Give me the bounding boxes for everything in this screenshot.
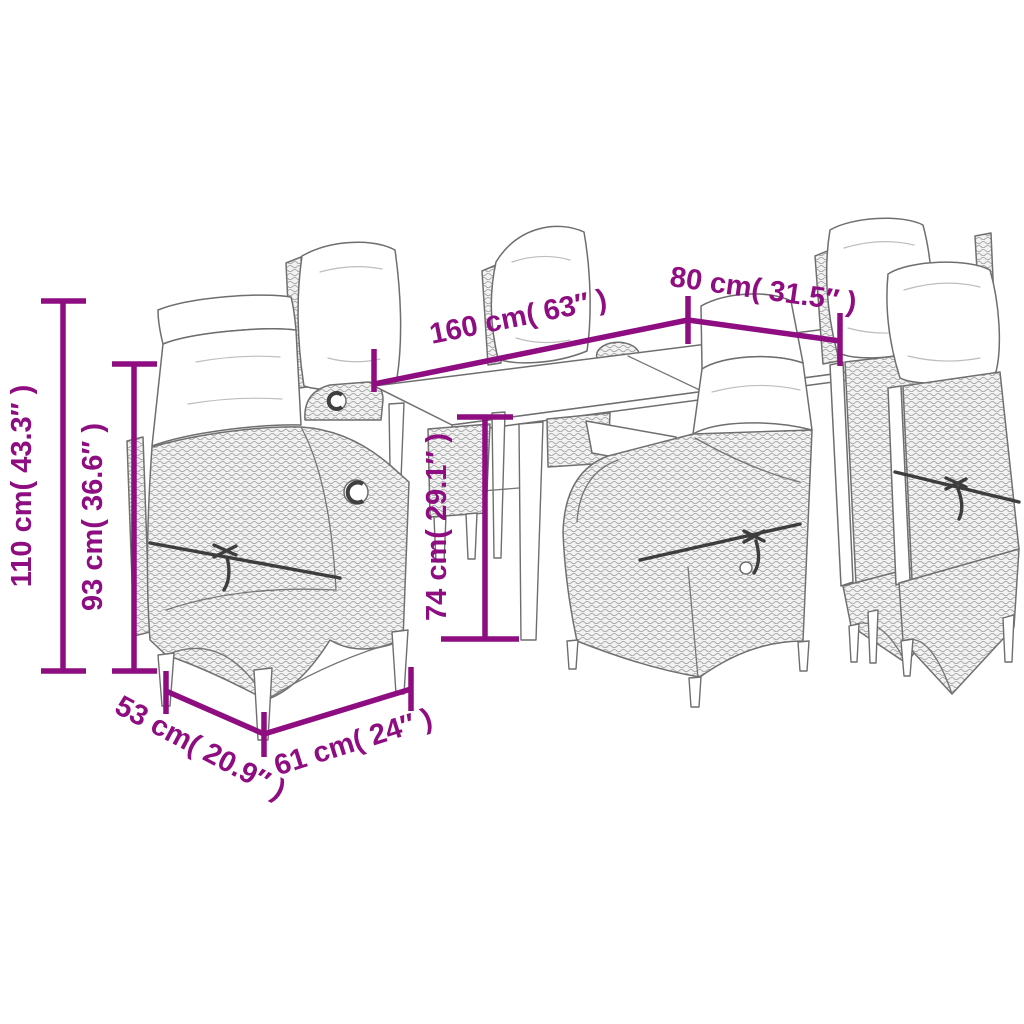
product-dimension-diagram: 110 cm( 43.3″ ) 93 cm( 36.6″ ) 160 cm( 6… (0, 0, 1024, 1024)
front-middle-chair-leg-front (689, 677, 701, 707)
table-leg-front (519, 422, 543, 640)
front-middle-chair-body (563, 430, 812, 677)
left-end-chair-leg-right (392, 630, 408, 694)
front-middle-chair-button (740, 562, 752, 574)
back-left-chair (286, 242, 401, 420)
right-end-chair-leg-right (1003, 615, 1014, 662)
back-right-chair-leg-front (868, 610, 878, 663)
dimension-table-height-label: 74 cm( 29.1″ ) (421, 433, 453, 621)
back-left-chair-pillow (298, 242, 401, 389)
table-leg-back (492, 412, 505, 558)
left-end-chair-rear-post (127, 437, 150, 636)
right-end-chair-pillow (887, 262, 999, 383)
front-middle-chair-leg-left (567, 640, 578, 669)
back-right-chair-leg-left (849, 624, 859, 662)
dimension-chair-height-label: 110 cm( 43.3″ ) (6, 385, 38, 588)
front-middle-chair-back-cushion (693, 357, 812, 434)
line-drawing-canvas: 110 cm( 43.3″ ) 93 cm( 36.6″ ) 160 cm( 6… (0, 0, 1024, 1024)
right-end-chair-back-panel (903, 372, 1019, 580)
dimension-chair-height: 110 cm( 43.3″ ) (6, 301, 86, 671)
left-end-chair-body (147, 427, 409, 700)
front-middle-chair-leg-right (798, 641, 809, 671)
right-end-chair (887, 262, 1019, 694)
under-table-chair-leg-b (466, 513, 477, 559)
dimension-backrest-height-label: 93 cm( 36.6″ ) (77, 423, 109, 611)
right-end-chair-leg-left (901, 639, 913, 676)
dimension-chair-width-label: 61 cm( 24″ ) (270, 703, 436, 783)
